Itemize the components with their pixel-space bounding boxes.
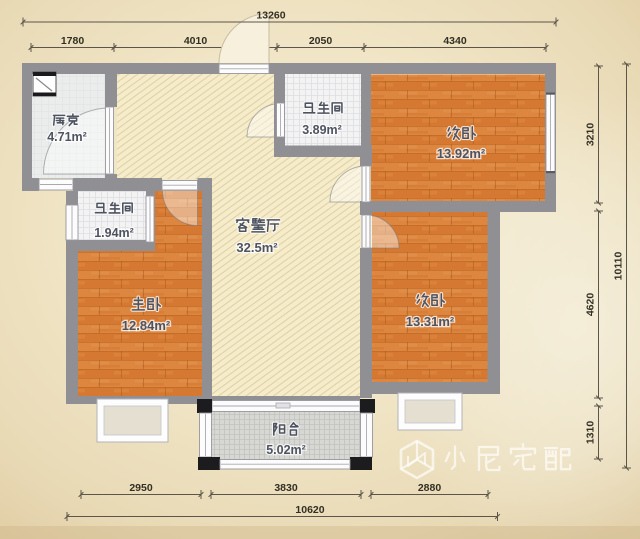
svg-text:3.89m²: 3.89m²	[302, 123, 342, 137]
svg-text:10110: 10110	[613, 252, 625, 281]
svg-text:4620: 4620	[585, 293, 597, 317]
svg-text:3210: 3210	[585, 123, 597, 147]
svg-text:4010: 4010	[184, 35, 208, 47]
svg-text:12.84m²: 12.84m²	[122, 318, 171, 333]
svg-text:13260: 13260	[256, 10, 285, 22]
svg-text:3830: 3830	[274, 482, 298, 494]
svg-text:2050: 2050	[309, 35, 333, 47]
svg-text:1.94m²: 1.94m²	[94, 226, 134, 240]
svg-text:1310: 1310	[585, 421, 597, 445]
svg-text:10620: 10620	[295, 504, 324, 516]
svg-text:1780: 1780	[61, 35, 85, 47]
svg-text:2880: 2880	[418, 482, 442, 494]
svg-text:2950: 2950	[129, 482, 153, 494]
svg-text:4.71m²: 4.71m²	[47, 130, 87, 144]
svg-text:13.31m²: 13.31m²	[406, 314, 455, 329]
svg-text:5.02m²: 5.02m²	[266, 443, 306, 457]
svg-text:13.92m²: 13.92m²	[437, 146, 486, 161]
svg-text:4340: 4340	[443, 35, 467, 47]
svg-text:32.5m²: 32.5m²	[236, 240, 278, 255]
